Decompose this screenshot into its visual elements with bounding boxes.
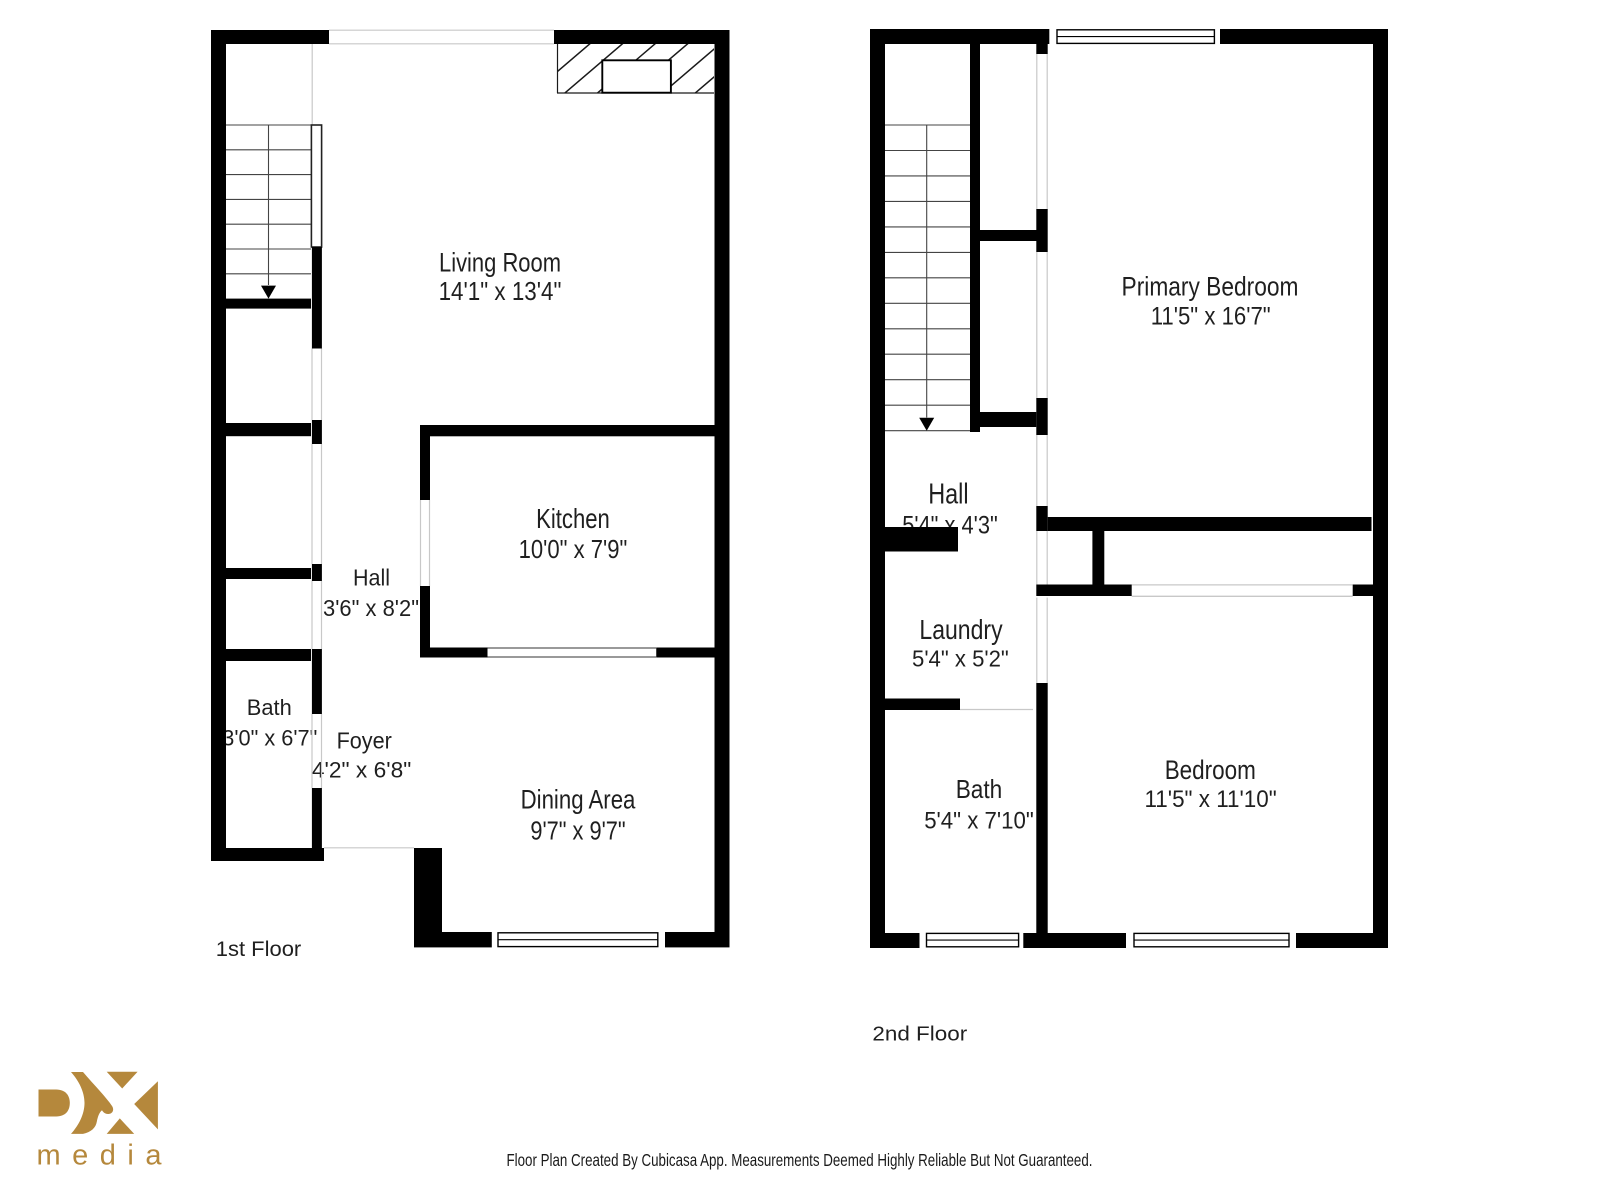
svg-text:1st Floor: 1st Floor xyxy=(216,938,302,961)
svg-text:Foyer: Foyer xyxy=(337,727,393,753)
svg-text:11'5" x 16'7": 11'5" x 16'7" xyxy=(1151,303,1271,331)
svg-text:Hall: Hall xyxy=(353,565,390,591)
svg-text:Primary Bedroom: Primary Bedroom xyxy=(1122,272,1299,302)
svg-text:14'1" x 13'4": 14'1" x 13'4" xyxy=(439,276,562,306)
svg-text:Hall: Hall xyxy=(928,478,968,510)
svg-text:4'2" x 6'8": 4'2" x 6'8" xyxy=(312,758,411,783)
svg-text:Kitchen: Kitchen xyxy=(536,503,610,534)
svg-text:10'0" x 7'9": 10'0" x 7'9" xyxy=(519,534,628,564)
svg-text:Bath: Bath xyxy=(247,695,292,720)
svg-text:3'0" x 6'7": 3'0" x 6'7" xyxy=(222,726,317,751)
svg-text:Living Room: Living Room xyxy=(439,248,561,278)
svg-text:9'7" x 9'7": 9'7" x 9'7" xyxy=(530,818,625,846)
svg-text:media: media xyxy=(37,1140,174,1172)
svg-text:2nd Floor: 2nd Floor xyxy=(872,1022,967,1045)
svg-text:Dining Area: Dining Area xyxy=(521,785,637,815)
svg-text:Floor Plan Created By Cubicasa: Floor Plan Created By Cubicasa App. Meas… xyxy=(507,1150,1093,1170)
svg-text:3'6" x 8'2": 3'6" x 8'2" xyxy=(323,595,419,621)
svg-text:Bath: Bath xyxy=(956,774,1003,804)
svg-text:5'4" x 5'2": 5'4" x 5'2" xyxy=(912,645,1009,671)
svg-text:5'4" x 7'10": 5'4" x 7'10" xyxy=(924,807,1034,834)
svg-text:Bedroom: Bedroom xyxy=(1165,755,1256,785)
svg-text:11'5" x 11'10": 11'5" x 11'10" xyxy=(1145,786,1277,813)
svg-text:Laundry: Laundry xyxy=(919,614,1002,645)
